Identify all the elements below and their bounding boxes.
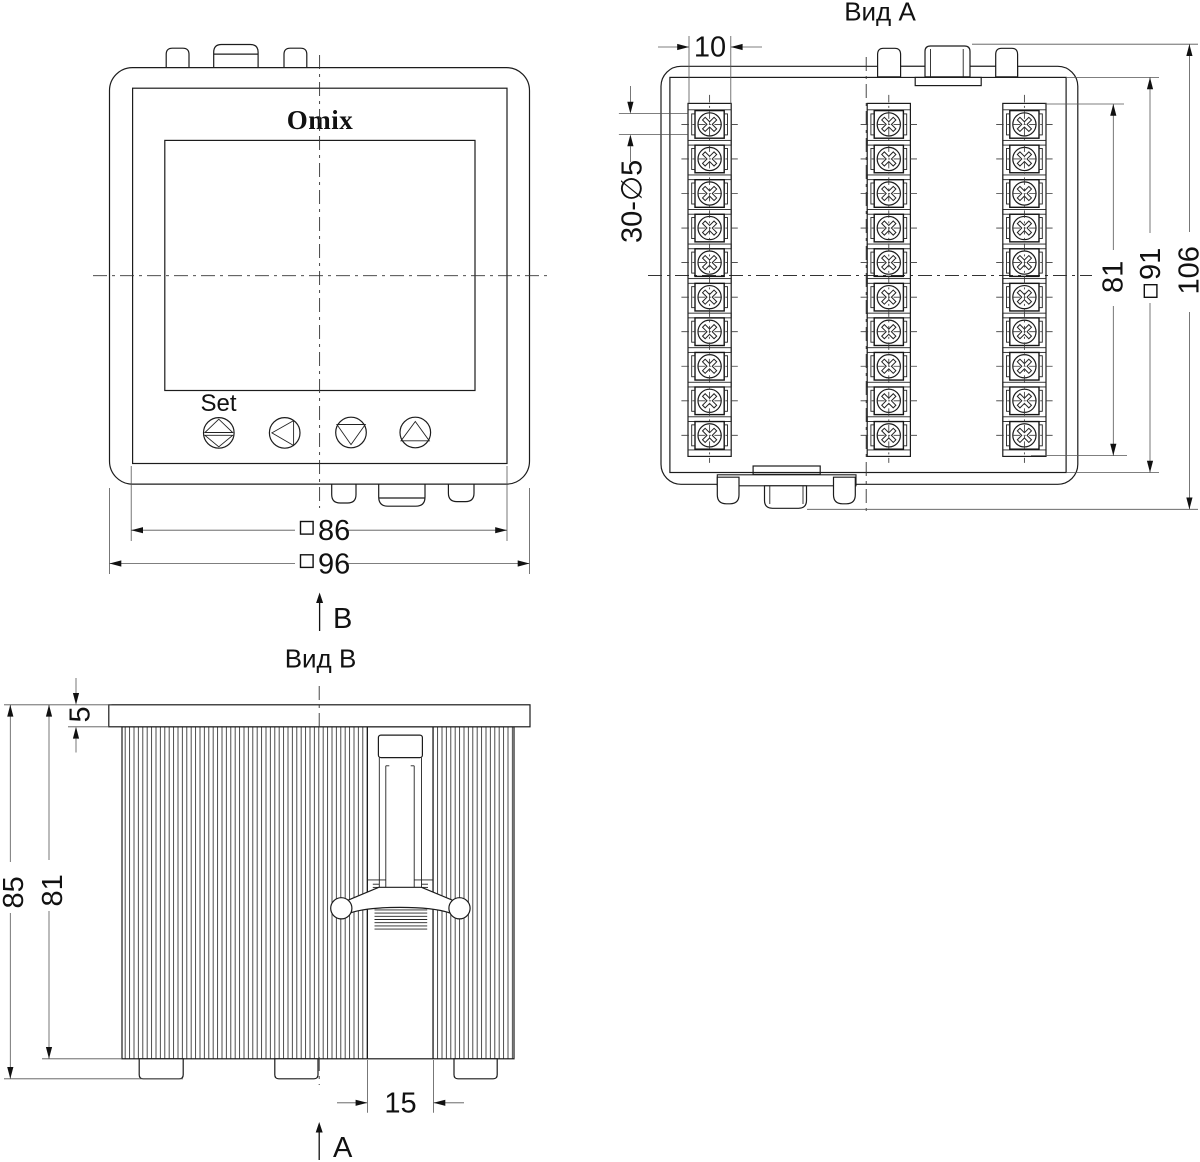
svg-text:86: 86 [318,515,350,547]
svg-text:106: 106 [1174,246,1200,294]
svg-text:85: 85 [0,876,30,908]
svg-text:30-∅5: 30-∅5 [617,160,649,243]
svg-text:5: 5 [65,706,97,722]
svg-text:91: 91 [1135,248,1167,280]
svg-text:A: A [333,1132,353,1162]
svg-text:10: 10 [694,32,726,64]
svg-text:Вид А: Вид А [844,0,916,27]
svg-text:81: 81 [37,874,69,906]
svg-text:Вид B: Вид B [285,644,357,674]
svg-text:Set: Set [200,390,236,417]
svg-text:96: 96 [318,548,350,580]
svg-text:15: 15 [384,1088,416,1120]
svg-text:B: B [333,603,352,635]
svg-text:81: 81 [1098,261,1130,293]
